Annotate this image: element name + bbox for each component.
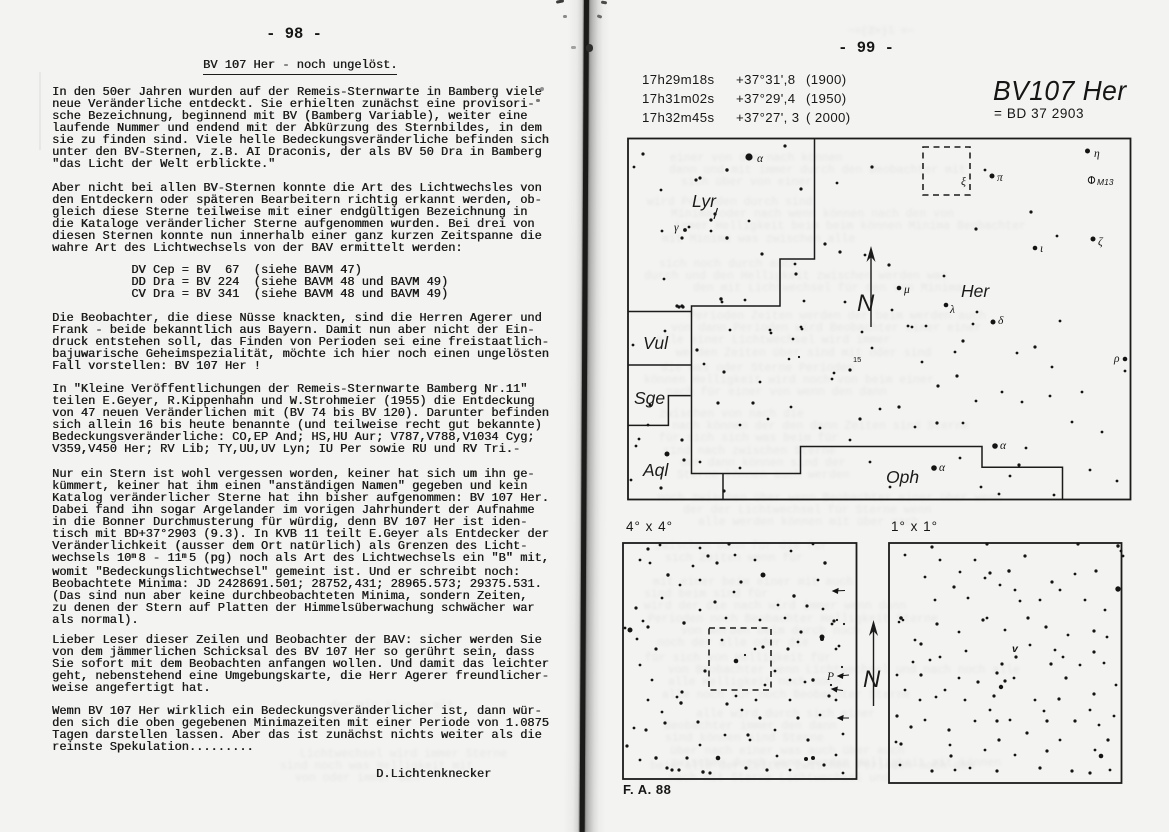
- svg-text:η: η: [1094, 148, 1100, 160]
- svg-text:Vul: Vul: [643, 333, 669, 353]
- svg-text:ξ: ξ: [961, 175, 966, 188]
- svg-text:Oph: Oph: [886, 467, 919, 487]
- svg-text:ι: ι: [1040, 243, 1043, 255]
- svg-text:17h31m02s: 17h31m02s: [642, 91, 715, 106]
- svg-text:ρ: ρ: [1113, 353, 1120, 365]
- svg-text:α: α: [1000, 440, 1007, 452]
- svg-text:μ: μ: [903, 284, 910, 296]
- svg-text:1° x 1°: 1° x 1°: [891, 519, 938, 534]
- svg-text:+37°29',4: +37°29',4: [736, 91, 795, 106]
- svg-text:( 2000): ( 2000): [806, 110, 851, 125]
- svg-text:Aql: Aql: [642, 460, 669, 480]
- svg-text:Her: Her: [961, 281, 990, 301]
- svg-text:π: π: [997, 172, 1004, 184]
- svg-text:(1900): (1900): [806, 72, 847, 87]
- svg-text:γ: γ: [674, 222, 679, 234]
- svg-text:M13: M13: [1097, 177, 1114, 187]
- svg-text:4° x 4°: 4° x 4°: [626, 519, 673, 534]
- svg-text:ζ: ζ: [1098, 236, 1104, 248]
- svg-text:N: N: [857, 290, 875, 317]
- svg-text:+37°31',8: +37°31',8: [736, 72, 795, 87]
- svg-text:δ: δ: [998, 315, 1004, 327]
- svg-text:α: α: [757, 153, 764, 165]
- svg-text:17h32m45s: 17h32m45s: [642, 110, 715, 125]
- svg-text:v: v: [1012, 643, 1019, 655]
- svg-text:15: 15: [853, 355, 861, 364]
- svg-text:BV107 Her: BV107 Her: [993, 74, 1127, 106]
- svg-text:= BD 37 2903: = BD 37 2903: [994, 106, 1084, 121]
- svg-text:F. A. 88: F. A. 88: [623, 782, 671, 797]
- svg-text:N: N: [863, 666, 881, 693]
- svg-text:α: α: [939, 462, 946, 474]
- svg-text:P: P: [826, 671, 834, 683]
- svg-text:(1950): (1950): [806, 91, 847, 106]
- svg-text:+37°27', 3: +37°27', 3: [736, 110, 800, 125]
- svg-text:λ: λ: [949, 304, 955, 316]
- svg-text:17h29m18s: 17h29m18s: [642, 72, 715, 87]
- svg-text:Lyr: Lyr: [692, 191, 717, 211]
